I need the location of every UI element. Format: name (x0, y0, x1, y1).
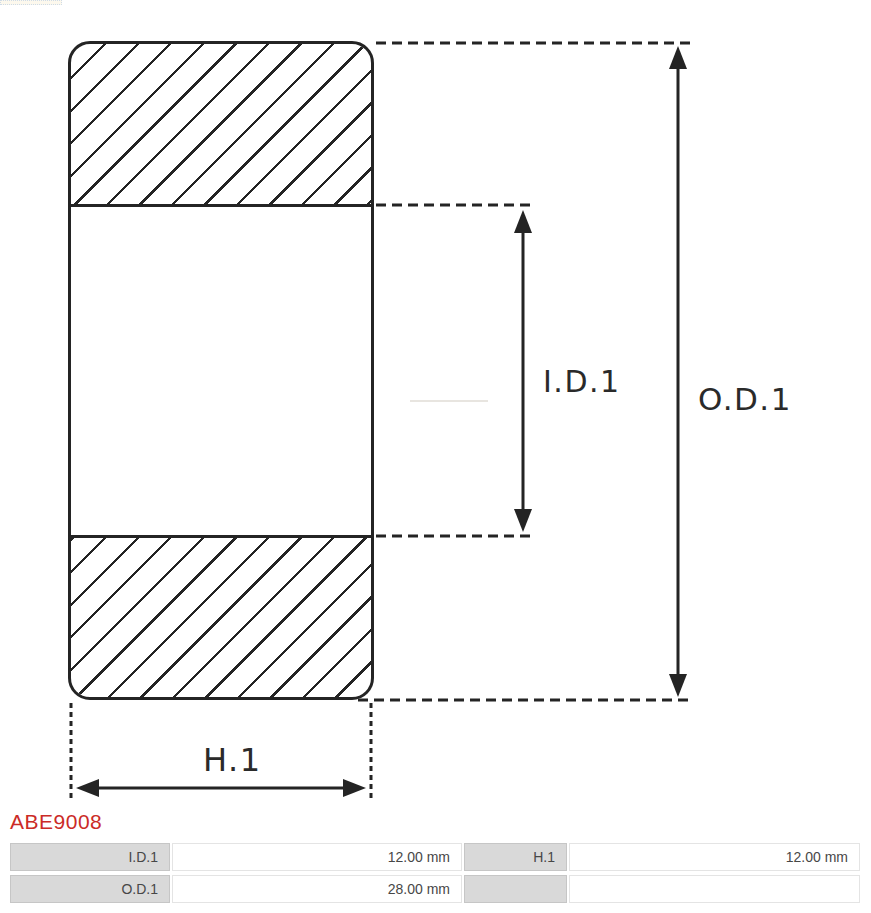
spec-value-empty (569, 875, 860, 903)
product-dimension-page: I.D.1 O.D.1 H.1 ABE9008 I.D.1 12.00 mm H… (0, 0, 871, 913)
faint-artifact-line (410, 400, 488, 402)
h1-arrowhead-right (343, 779, 366, 797)
h1-label: H.1 (203, 741, 262, 779)
spec-label-empty (464, 875, 567, 903)
spec-table: I.D.1 12.00 mm H.1 12.00 mm O.D.1 28.00 … (10, 843, 860, 903)
spec-value-id1: 12.00 mm (172, 843, 462, 871)
h1-arrowhead-left (76, 779, 99, 797)
id1-label: I.D.1 (543, 364, 621, 399)
id1-arrowhead-up (514, 210, 532, 233)
od1-label: O.D.1 (698, 381, 792, 417)
od1-arrowhead-down (669, 674, 687, 697)
part-number-link[interactable]: ABE9008 (10, 810, 102, 834)
od1-arrowhead-up (669, 46, 687, 69)
spec-value-od1: 28.00 mm (172, 875, 462, 903)
id1-arrowhead-down (514, 509, 532, 532)
spec-label-id1: I.D.1 (10, 843, 170, 871)
spec-label-od1: O.D.1 (10, 875, 170, 903)
spec-label-h1: H.1 (464, 843, 567, 871)
spec-value-h1: 12.00 mm (569, 843, 860, 871)
